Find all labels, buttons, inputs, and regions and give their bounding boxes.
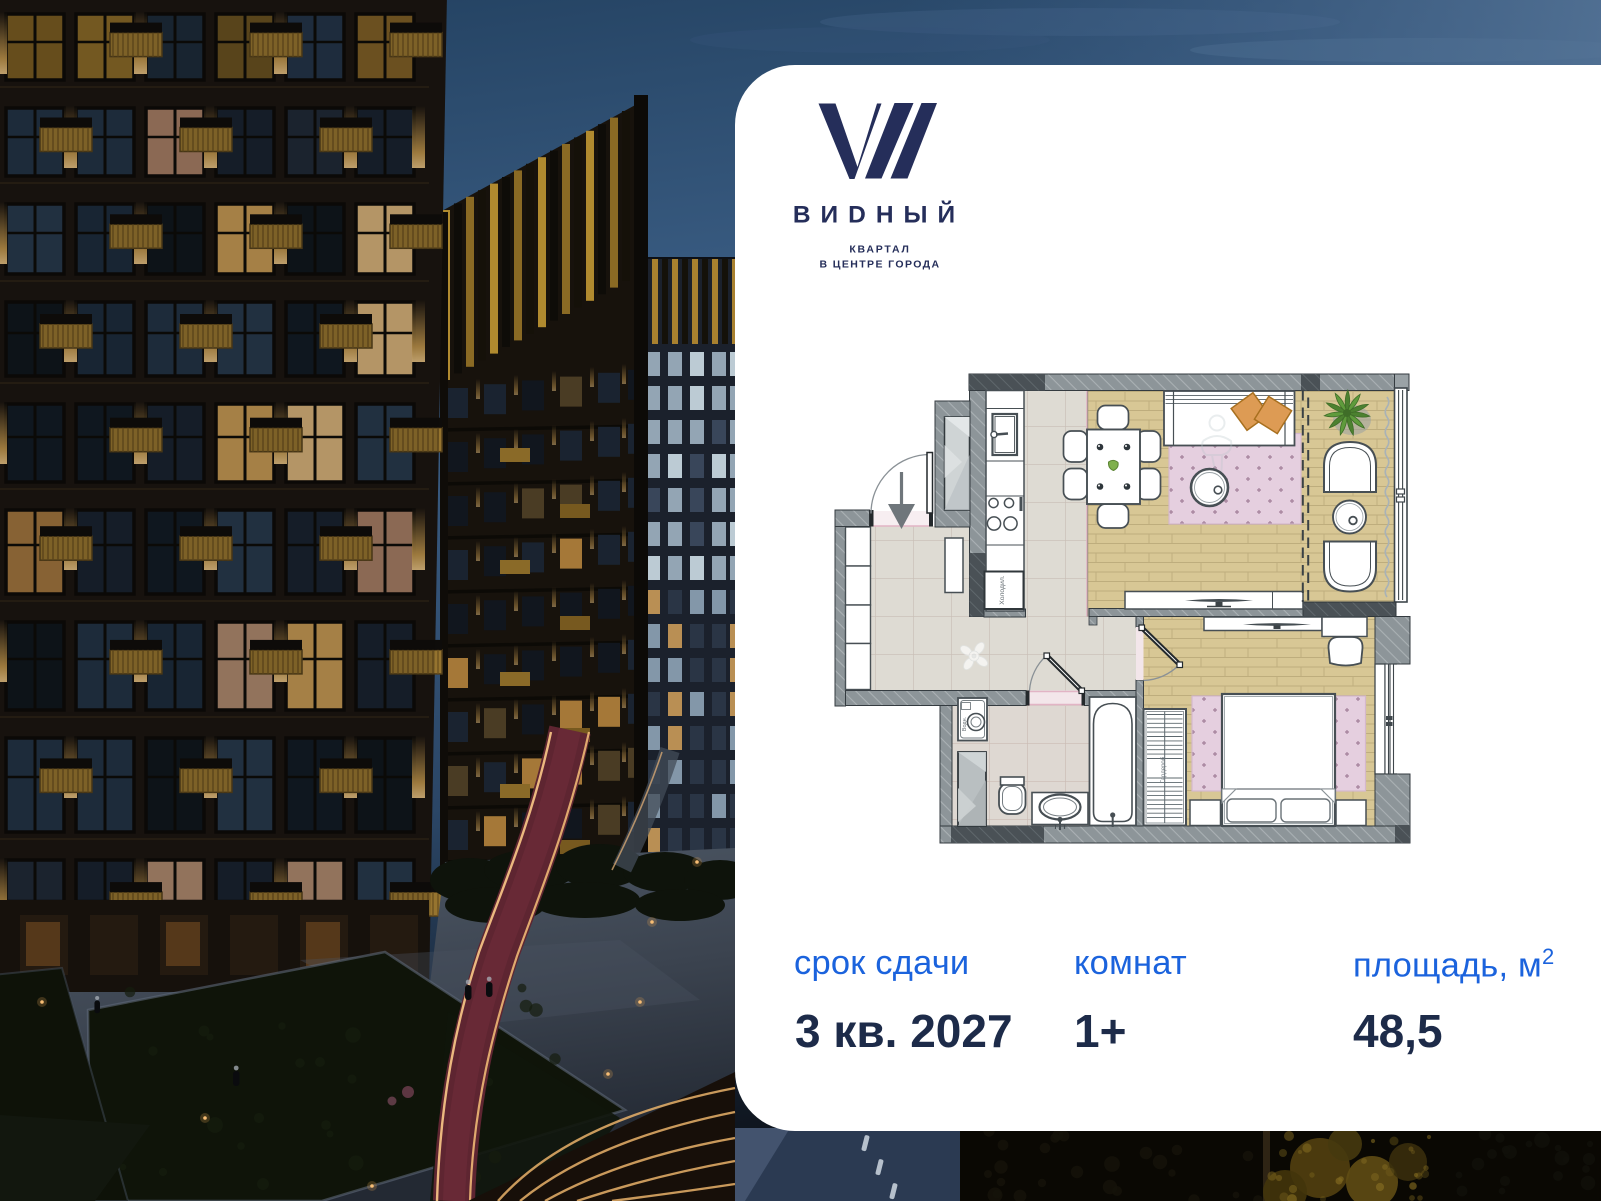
- svg-text:Холодил.: Холодил.: [999, 575, 1006, 604]
- svg-text:КВАРТАЛ: КВАРТАЛ: [849, 244, 910, 256]
- svg-text:В ЦЕНТРЕ ГОРОДА: В ЦЕНТРЕ ГОРОДА: [819, 259, 940, 271]
- svg-text:Водн.: Водн.: [962, 716, 968, 731]
- svg-text:Гардероб: Гардероб: [1161, 756, 1167, 783]
- svg-text:ВИDНЫЙ: ВИDНЫЙ: [793, 201, 965, 229]
